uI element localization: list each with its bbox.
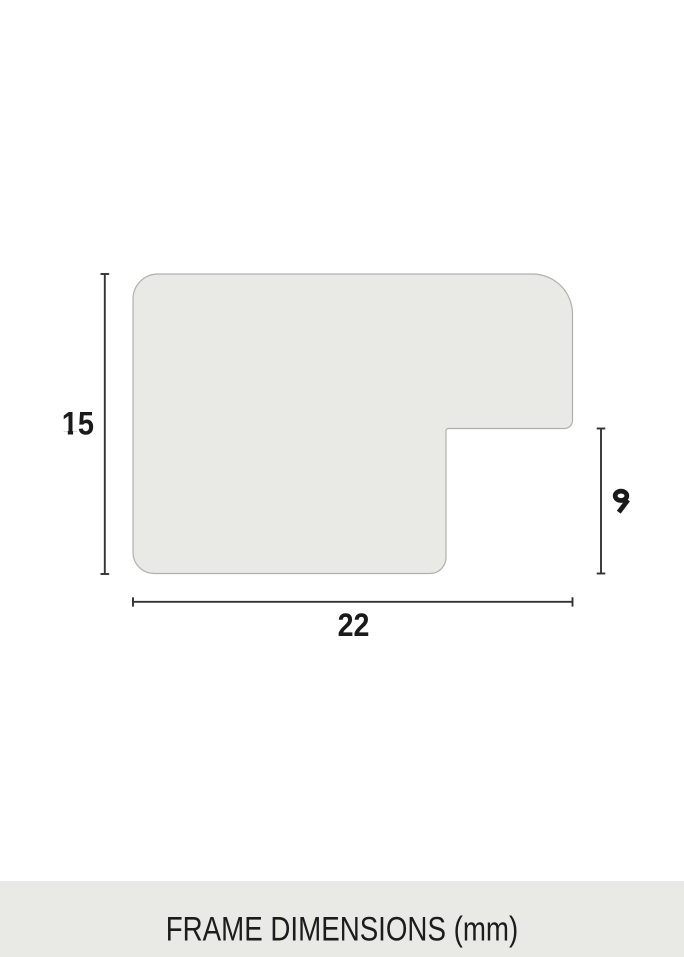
- svg-text:22: 22: [338, 607, 370, 643]
- svg-text:FRAME DIMENSIONS (mm): FRAME DIMENSIONS (mm): [166, 911, 519, 949]
- svg-text:15: 15: [62, 406, 94, 442]
